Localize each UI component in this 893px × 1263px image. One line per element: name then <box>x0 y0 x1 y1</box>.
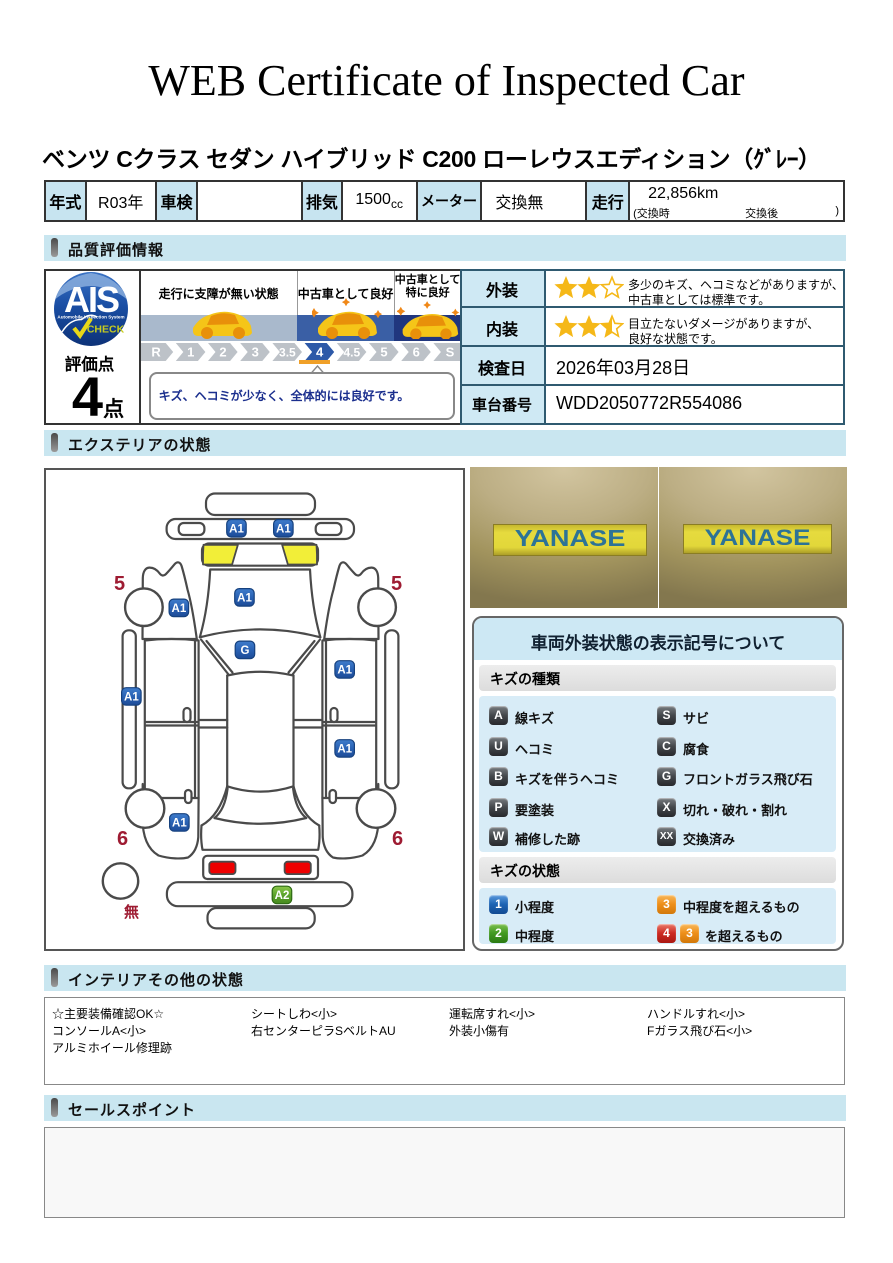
svg-text:A2: A2 <box>275 890 290 902</box>
svg-text:A1: A1 <box>172 818 187 830</box>
svg-text:6: 6 <box>117 828 128 850</box>
svg-text:A1: A1 <box>337 744 352 756</box>
svg-text:3.5: 3.5 <box>279 345 296 359</box>
svg-text:5: 5 <box>114 573 125 595</box>
svg-text:1: 1 <box>187 344 194 359</box>
svg-text:5: 5 <box>380 344 387 359</box>
svg-text:A1: A1 <box>124 692 139 704</box>
svg-text:A1: A1 <box>276 523 291 535</box>
svg-text:A1: A1 <box>337 665 352 677</box>
svg-text:2: 2 <box>219 344 226 359</box>
svg-text:S: S <box>445 344 454 359</box>
svg-text:A1: A1 <box>229 523 244 535</box>
svg-text:3: 3 <box>251 344 258 359</box>
svg-text:5: 5 <box>391 573 402 595</box>
svg-text:A1: A1 <box>172 603 187 615</box>
svg-text:6: 6 <box>412 344 419 359</box>
svg-text:R: R <box>151 344 161 359</box>
svg-text:4.5: 4.5 <box>343 345 360 359</box>
svg-text:CHECK: CHECK <box>87 324 125 336</box>
svg-text:A1: A1 <box>237 592 252 604</box>
svg-text:4: 4 <box>316 344 324 359</box>
svg-text:無: 無 <box>124 903 139 921</box>
svg-text:6: 6 <box>392 828 403 850</box>
svg-text:G: G <box>241 645 250 657</box>
